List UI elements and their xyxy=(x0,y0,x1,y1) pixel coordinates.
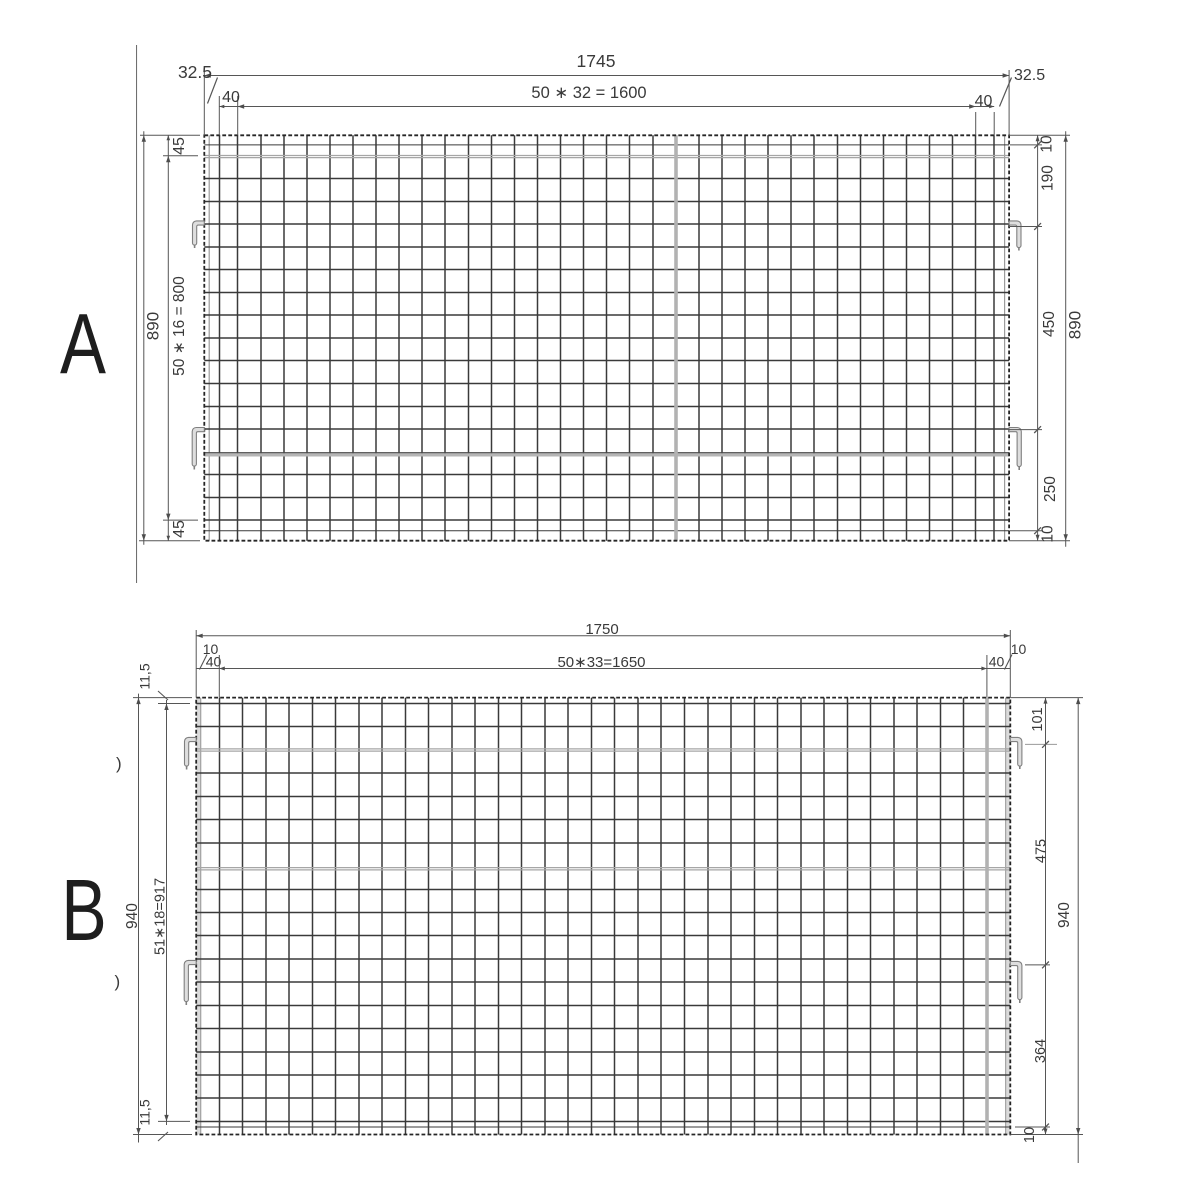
svg-text:11,5: 11,5 xyxy=(137,663,153,689)
svg-text:450: 450 xyxy=(1041,311,1058,337)
svg-text:940: 940 xyxy=(124,903,141,929)
svg-text:40: 40 xyxy=(975,93,993,110)
svg-text:10: 10 xyxy=(1011,641,1027,657)
svg-text:45: 45 xyxy=(171,137,188,155)
svg-text:32.5: 32.5 xyxy=(1014,67,1045,84)
svg-text:): ) xyxy=(116,754,122,773)
svg-text:51∗18=917: 51∗18=917 xyxy=(153,878,169,955)
svg-text:10: 10 xyxy=(1039,135,1056,153)
svg-text:B: B xyxy=(61,862,107,959)
svg-text:): ) xyxy=(115,972,121,991)
svg-text:890: 890 xyxy=(1066,311,1085,339)
svg-text:475: 475 xyxy=(1034,839,1050,863)
svg-text:40: 40 xyxy=(989,654,1005,670)
svg-text:50 ∗ 16 = 800: 50 ∗ 16 = 800 xyxy=(171,276,188,376)
svg-text:101: 101 xyxy=(1030,707,1046,731)
svg-text:10: 10 xyxy=(1022,1127,1038,1143)
svg-text:50∗33=1650: 50∗33=1650 xyxy=(557,654,645,671)
svg-text:50 ∗ 32 = 1600: 50 ∗ 32 = 1600 xyxy=(531,84,646,102)
svg-text:190: 190 xyxy=(1040,165,1057,191)
svg-text:1745: 1745 xyxy=(577,51,616,71)
svg-text:364: 364 xyxy=(1033,1039,1049,1063)
svg-text:1750: 1750 xyxy=(585,621,618,638)
svg-text:40: 40 xyxy=(222,89,240,106)
svg-text:32.5: 32.5 xyxy=(178,62,212,82)
svg-text:11,5: 11,5 xyxy=(137,1099,153,1125)
svg-text:250: 250 xyxy=(1042,476,1059,502)
svg-text:890: 890 xyxy=(144,312,163,340)
svg-text:940: 940 xyxy=(1056,902,1073,928)
svg-text:45: 45 xyxy=(171,520,188,538)
svg-text:A: A xyxy=(60,297,106,392)
svg-text:10: 10 xyxy=(1040,525,1057,543)
